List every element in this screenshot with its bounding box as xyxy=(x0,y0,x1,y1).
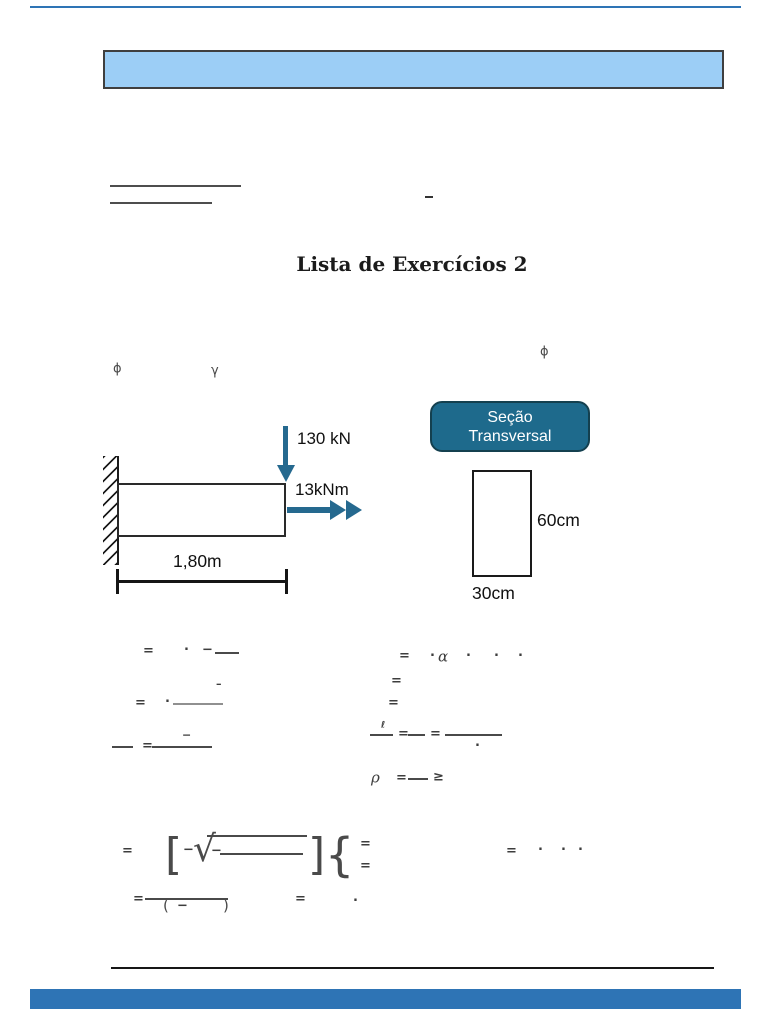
moment-arrow-icon xyxy=(287,507,332,513)
formula-fragment: = xyxy=(122,845,133,858)
formula-fragment: · xyxy=(475,740,480,753)
formula-fragment: γ xyxy=(211,365,219,378)
section-rectangle xyxy=(472,470,532,577)
formula-fragment: ρ xyxy=(371,771,380,786)
formula-fragment: · xyxy=(518,650,523,663)
formula-fragment: · xyxy=(538,844,543,857)
formula-bar xyxy=(112,746,133,748)
document-page: Lista de Exercícios 2 130 kN 13kNm 1,80m… xyxy=(0,0,768,1024)
dash-mark xyxy=(425,196,433,198)
formula-fragment: − xyxy=(202,644,213,657)
formula-fragment: [ xyxy=(165,833,182,877)
section-title-line2: Transversal xyxy=(469,427,552,446)
formula-fragment: · xyxy=(353,895,358,908)
formula-fragment: = xyxy=(391,675,402,688)
section-title-box: Seção Transversal xyxy=(430,401,590,452)
formula-fragment: − xyxy=(182,730,191,741)
section-width-label: 30cm xyxy=(472,583,515,604)
load-arrowhead-icon xyxy=(277,465,295,482)
formula-bar xyxy=(408,778,428,780)
formula-fragment: · xyxy=(578,844,583,857)
formula-fragment: · xyxy=(494,650,499,663)
formula-fragment: = xyxy=(360,838,371,851)
formula-fragment: = xyxy=(506,845,517,858)
page-title: Lista de Exercícios 2 xyxy=(56,252,768,276)
formula-fragment: α xyxy=(438,650,448,665)
top-accent-line xyxy=(30,6,741,8)
formula-fragment: ) xyxy=(223,899,229,914)
formula-bar xyxy=(207,835,307,837)
formula-fragment: = xyxy=(399,650,410,663)
dimension-line xyxy=(117,580,288,583)
formula-fragment: = xyxy=(133,893,144,906)
formula-fragment: = xyxy=(295,893,306,906)
formula-bar xyxy=(145,898,228,900)
formula-fragment: ( xyxy=(163,899,169,914)
formula-fragment: { xyxy=(325,832,354,878)
formula-fragment: = xyxy=(360,860,371,873)
dimension-tick xyxy=(116,569,119,594)
length-label: 1,80m xyxy=(173,551,222,572)
formula-bar xyxy=(215,652,239,654)
moment-arrowhead-icon xyxy=(346,500,362,520)
footer-accent-bar xyxy=(30,989,741,1009)
footer-rule xyxy=(111,967,714,969)
formula-fragment: – xyxy=(216,679,222,690)
formula-bar xyxy=(408,734,425,736)
formula-bar xyxy=(152,746,212,748)
formula-fragment: − xyxy=(211,845,222,858)
section-height-label: 60cm xyxy=(537,510,580,531)
formula-fragment: ≥ xyxy=(433,771,444,784)
moment-arrowhead-icon xyxy=(330,500,346,520)
formula-bar xyxy=(220,853,303,855)
beam-body xyxy=(117,483,286,537)
formula-fragment: · xyxy=(561,844,566,857)
formula-fragment: · xyxy=(466,650,471,663)
underline-field xyxy=(110,202,212,204)
formula-fragment: = xyxy=(143,645,154,658)
formula-fragment: · xyxy=(165,696,170,709)
section-title-line1: Seção xyxy=(487,408,532,427)
formula-fragment: ℓ xyxy=(381,722,385,731)
underline-field xyxy=(110,185,241,187)
formula-fragment: · xyxy=(184,644,189,657)
formula-bar xyxy=(370,734,393,736)
formula-fragment: = xyxy=(135,697,146,710)
formula-fragment: = xyxy=(430,728,441,741)
load-arrow-icon xyxy=(283,426,288,466)
formula-fragment: ] xyxy=(308,833,325,877)
formula-bar xyxy=(173,703,223,705)
formula-fragment: − xyxy=(177,900,188,913)
formula-fragment: · xyxy=(430,650,435,663)
formula-fragment: ϕ xyxy=(113,363,122,376)
title-banner xyxy=(103,50,724,89)
formula-fragment: = xyxy=(388,697,399,710)
load-label: 130 kN xyxy=(297,429,351,449)
moment-label: 13kNm xyxy=(295,480,349,500)
dimension-tick xyxy=(285,569,288,594)
formula-fragment: ϕ xyxy=(540,346,549,359)
formula-bar xyxy=(445,734,502,736)
formula-fragment: = xyxy=(396,772,407,785)
